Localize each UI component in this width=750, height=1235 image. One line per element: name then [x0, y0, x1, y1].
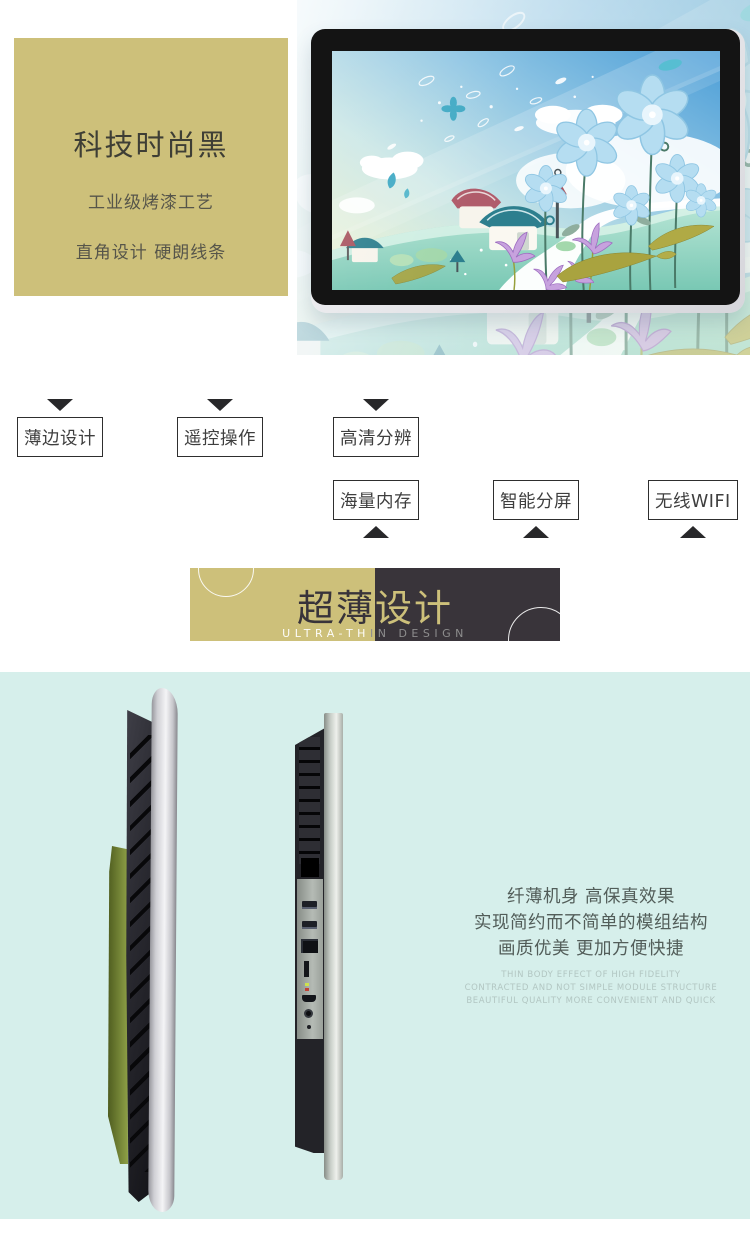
thin-en-line: CONTRACTED AND NOT SIMPLE MODULE STRUCTU… — [421, 982, 750, 995]
product-detail-page: 科技时尚黑 工业级烤漆工艺 直角设计 硬朗线条 — [0, 0, 750, 1235]
feature-smart-split-screen: 智能分屏 — [493, 480, 579, 538]
feature-thin-edge: 薄边设计 — [17, 399, 103, 457]
ethernet-port — [301, 939, 318, 953]
banner-subtitle: ULTRA-THIN DESIGN — [190, 627, 560, 640]
usb-port — [302, 921, 317, 929]
tablet-screen — [332, 51, 720, 290]
io-ports — [297, 879, 323, 1039]
banner-title-left: 超薄 — [297, 587, 375, 630]
feature-label: 无线WIFI — [648, 480, 738, 520]
banner-title-right: 设计 — [375, 587, 453, 630]
hero-headline: 科技时尚黑 — [73, 122, 228, 164]
up-arrow-icon — [523, 526, 549, 538]
thin-en-block: THIN BODY EFFECT OF HIGH FIDELITY CONTRA… — [421, 969, 750, 1008]
banner-subtitle-left: ULTRA-TH — [282, 627, 370, 640]
thin-description: 纤薄机身 高保真效果 实现简约而不简单的模组结构 画质优美 更加方便快捷 THI… — [421, 884, 750, 1008]
down-arrow-icon — [207, 399, 233, 411]
ultra-thin-banner: 超薄设计 ULTRA-THIN DESIGN — [190, 568, 560, 641]
port-recess — [301, 858, 319, 877]
hero-text-panel: 科技时尚黑 工业级烤漆工艺 直角设计 硬朗线条 — [14, 38, 288, 296]
feature-remote-control: 遥控操作 — [177, 399, 263, 457]
up-arrow-icon — [363, 526, 389, 538]
tablet-bezel — [311, 29, 740, 305]
status-led-green — [305, 983, 309, 986]
feature-label: 高清分辨 — [333, 417, 419, 457]
banner-subtitle-right: IN DESIGN — [370, 627, 468, 640]
feature-label: 薄边设计 — [17, 417, 103, 457]
device-front-edge — [148, 688, 178, 1212]
device-side-view-left — [106, 686, 176, 1214]
down-arrow-icon — [47, 399, 73, 411]
feature-label: 海量内存 — [333, 480, 419, 520]
thin-profile-section: 纤薄机身 高保真效果 实现简约而不简单的模组结构 画质优美 更加方便快捷 THI… — [0, 672, 750, 1219]
tablet-display — [311, 29, 745, 313]
down-arrow-icon — [363, 399, 389, 411]
hero-subline-2: 直角设计 硬朗线条 — [76, 238, 226, 263]
card-slot — [304, 961, 309, 977]
thin-cn-line: 画质优美 更加方便快捷 — [421, 936, 750, 962]
thin-cn-line: 实现简约而不简单的模组结构 — [421, 910, 750, 936]
hdmi-port — [302, 995, 316, 1002]
feature-label: 智能分屏 — [493, 480, 579, 520]
horizontal-vents — [299, 737, 321, 865]
power-jack — [304, 1009, 313, 1018]
status-led-red — [305, 988, 309, 991]
banner-title: 超薄设计 — [190, 590, 560, 628]
device-inner-board — [108, 846, 128, 1164]
thin-en-line: THIN BODY EFFECT OF HIGH FIDELITY — [421, 969, 750, 982]
feature-mass-storage: 海量内存 — [333, 480, 419, 538]
usb-port — [302, 901, 317, 909]
thin-cn-line: 纤薄机身 高保真效果 — [421, 884, 750, 910]
feature-wireless-wifi: 无线WIFI — [648, 480, 738, 538]
device-front-edge — [324, 713, 343, 1180]
feature-label: 遥控操作 — [177, 417, 263, 457]
up-arrow-icon — [680, 526, 706, 538]
reset-button — [307, 1025, 311, 1029]
hero-illustration — [297, 0, 750, 355]
feature-hd-resolution: 高清分辨 — [333, 399, 419, 457]
device-side-view-right — [295, 713, 345, 1181]
thin-en-line: BEAUTIFUL QUALITY MORE CONVENIENT AND QU… — [421, 995, 750, 1008]
hero-subline-1: 工业级烤漆工艺 — [88, 188, 214, 213]
